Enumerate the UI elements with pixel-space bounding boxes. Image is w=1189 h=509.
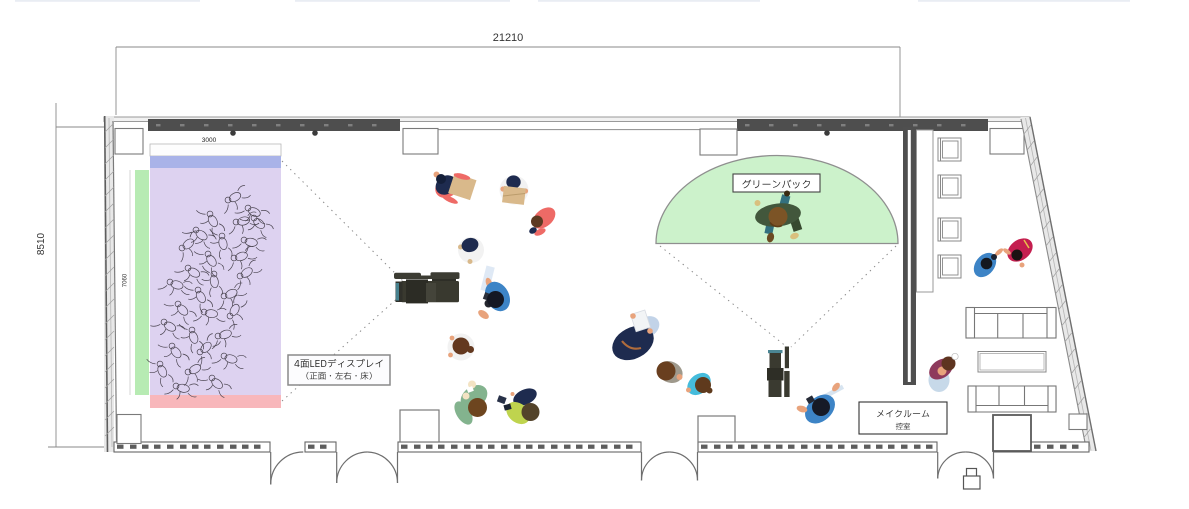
svg-text:3000: 3000	[202, 137, 217, 144]
svg-text:21210: 21210	[493, 32, 524, 44]
svg-text:8510: 8510	[36, 232, 47, 255]
svg-text:7060: 7060	[123, 273, 129, 287]
